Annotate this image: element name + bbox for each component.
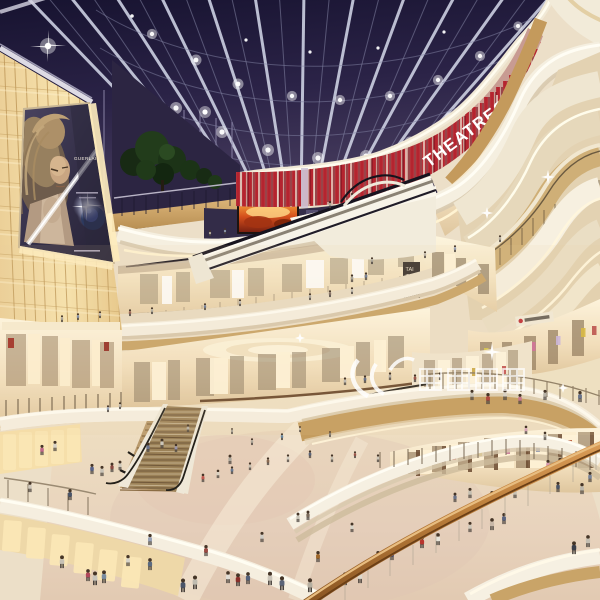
svg-text:GUERLAIN: GUERLAIN: [74, 156, 100, 161]
